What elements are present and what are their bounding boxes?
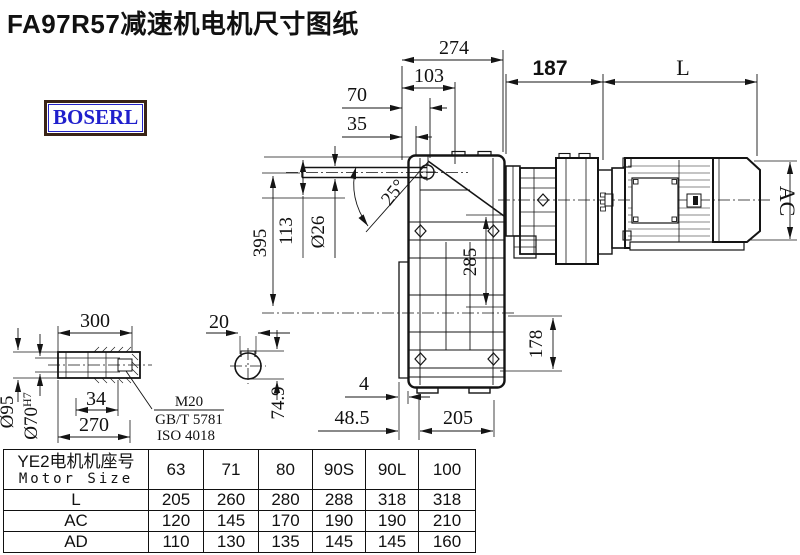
standard-gb5781: GB/T 5781 — [155, 412, 223, 428]
size-90s: 90S — [313, 450, 366, 490]
cell: 190 — [366, 511, 419, 532]
cell: 260 — [204, 490, 259, 511]
cell: 318 — [366, 490, 419, 511]
header-motor-size: YE2电机机座号 Motor Size — [4, 450, 149, 490]
row-label-AC: AC — [4, 511, 149, 532]
dim-diameter-95: Ø95 — [0, 396, 18, 429]
motor-size-table: YE2电机机座号 Motor Size 63 71 80 90S 90L 100… — [3, 449, 476, 553]
table-header-row: YE2电机机座号 Motor Size 63 71 80 90S 90L 100 — [4, 450, 476, 490]
dim-178: 178 — [526, 330, 547, 359]
gearbox-housing — [399, 152, 505, 394]
shaft-section-view: 20 74.9 — [206, 311, 290, 420]
drawing-page: FA97R57减速机电机尺寸图纸 BOSERL — [0, 0, 800, 555]
extension-lines-top — [402, 50, 757, 164]
size-71: 71 — [204, 450, 259, 490]
header-cn: YE2电机机座号 — [4, 452, 148, 471]
dim-h7-tolerance: H7 — [20, 392, 34, 407]
dim-20: 20 — [209, 311, 229, 333]
cell: 190 — [313, 511, 366, 532]
cell: 120 — [149, 511, 204, 532]
dim-AC: AC — [775, 186, 800, 217]
top-dimensions: 274 103 70 35 187 L — [342, 37, 757, 164]
cell: 288 — [313, 490, 366, 511]
dim-angle-25: 25° — [377, 176, 410, 210]
table-row: AC 120 145 170 190 190 210 — [4, 511, 476, 532]
cell: 318 — [419, 490, 476, 511]
dim-270: 270 — [79, 414, 109, 436]
cell: 145 — [204, 511, 259, 532]
cell: 170 — [259, 511, 313, 532]
dim-74-9: 74.9 — [268, 386, 289, 419]
row-label-AD: AD — [4, 532, 149, 553]
cell: 205 — [149, 490, 204, 511]
dim-274: 274 — [439, 37, 469, 59]
shaft-detail-view: 300 34 270 Ø95 Ø70H7 M20 GB/T 5781 ISO 4… — [0, 310, 224, 444]
r57-gear-unit — [506, 154, 612, 265]
dim-205: 205 — [443, 407, 473, 429]
dim-diameter-70h7: Ø70H7 — [20, 392, 42, 439]
cell: 280 — [259, 490, 313, 511]
cell: 130 — [204, 532, 259, 553]
standard-iso4018: ISO 4018 — [157, 428, 215, 444]
dim-4: 4 — [359, 373, 369, 395]
dim-395: 395 — [250, 229, 271, 258]
cell: 160 — [419, 532, 476, 553]
dim-70: 70 — [347, 84, 367, 106]
size-90l: 90L — [366, 450, 419, 490]
dim-70-base: Ø70 — [21, 407, 42, 440]
dim-diameter-26: Ø26 — [308, 216, 329, 249]
cell: 210 — [419, 511, 476, 532]
cell: 135 — [259, 532, 313, 553]
dim-187: 187 — [532, 57, 567, 80]
size-63: 63 — [149, 450, 204, 490]
dim-103: 103 — [414, 65, 444, 87]
table-row: L 205 260 280 288 318 318 — [4, 490, 476, 511]
dim-35: 35 — [347, 113, 367, 135]
bottom-dimensions: 4 48.5 205 — [318, 373, 494, 440]
header-en: Motor Size — [4, 471, 148, 488]
dim-34: 34 — [86, 388, 106, 410]
dim-300: 300 — [80, 310, 110, 332]
cell: 145 — [366, 532, 419, 553]
thread-spec-m20: M20 — [175, 394, 203, 410]
table-row: AD 110 130 135 145 145 160 — [4, 532, 476, 553]
dim-113: 113 — [276, 217, 297, 245]
dim-L: L — [676, 55, 689, 80]
size-100: 100 — [419, 450, 476, 490]
size-80: 80 — [259, 450, 313, 490]
motor-side-view — [605, 158, 760, 250]
cell: 145 — [313, 532, 366, 553]
dim-48-5: 48.5 — [335, 407, 370, 429]
motor-feet — [630, 242, 744, 250]
cell: 110 — [149, 532, 204, 553]
row-label-L: L — [4, 490, 149, 511]
dim-285: 285 — [460, 248, 481, 277]
motor-frame — [632, 178, 678, 223]
